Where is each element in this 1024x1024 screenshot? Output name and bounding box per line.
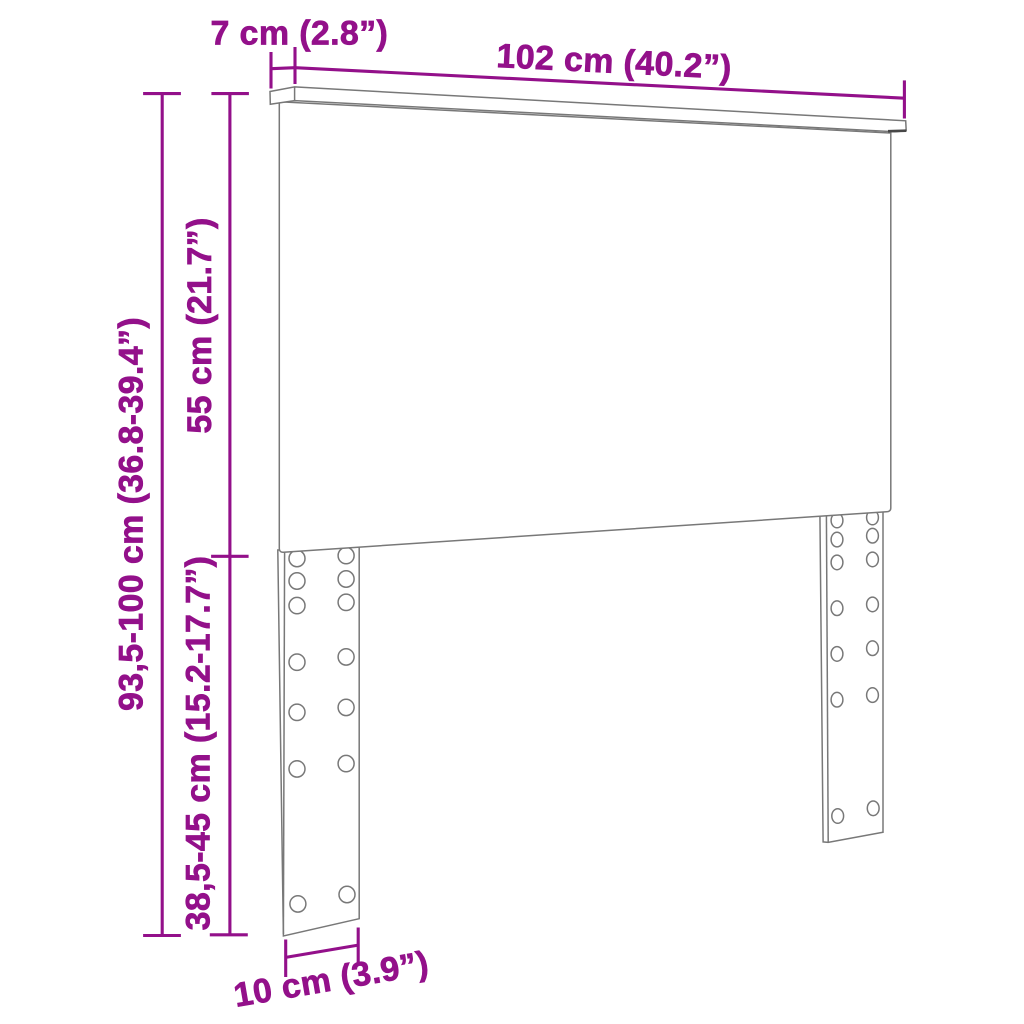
svg-text:38,5-45 cm (15.2-17.7”): 38,5-45 cm (15.2-17.7”) — [180, 556, 218, 931]
svg-text:93,5-100 cm (36.8-39.4”): 93,5-100 cm (36.8-39.4”) — [112, 317, 150, 711]
svg-text:55 cm (21.7”): 55 cm (21.7”) — [181, 217, 219, 433]
svg-text:7 cm (2.8”): 7 cm (2.8”) — [211, 15, 389, 53]
